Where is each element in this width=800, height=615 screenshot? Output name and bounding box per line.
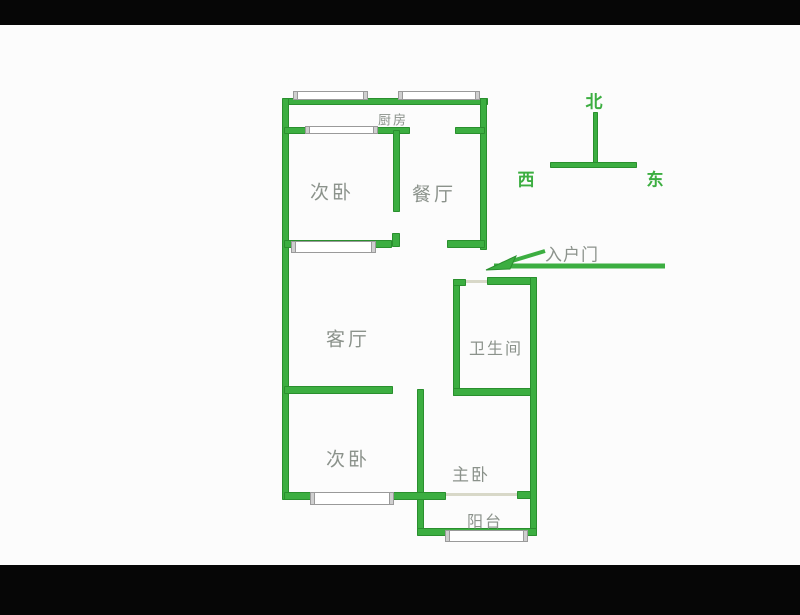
room-label-balcony: 阳台	[467, 508, 503, 532]
wall-outer-left	[282, 98, 289, 500]
room-label-master: 主卧	[452, 461, 490, 486]
wall-outer-right-lower	[530, 277, 537, 536]
room-label-living: 客厅	[326, 325, 370, 352]
window-top-left	[293, 91, 368, 100]
wall-kitchen-right	[455, 127, 485, 134]
room-label-kitchen: 厨房	[378, 110, 408, 129]
room-label-bedroom-bottom: 次卧	[326, 445, 370, 472]
wall-divider-lower	[417, 389, 424, 535]
compass-horizontal-line	[550, 162, 637, 168]
compass-vertical-line	[593, 112, 598, 166]
wall-outer-right-upper	[480, 98, 487, 250]
window-top-right	[398, 91, 480, 100]
room-label-dining: 餐厅	[412, 180, 456, 207]
entrance-arrow-icon	[478, 243, 673, 277]
compass-west-label: 西	[518, 166, 535, 191]
compass-east-label: 东	[647, 166, 664, 191]
wall-living-bottom	[284, 386, 393, 394]
room-label-bedroom-top: 次卧	[310, 178, 354, 205]
window-kitchen	[305, 126, 378, 134]
wall-bath-left	[453, 279, 460, 396]
door-bathroom	[466, 280, 487, 283]
floor-plan-photo: 厨房 次卧 餐厅 客厅 卫生间 次卧 主卧 阳台 入户门 北 西 东	[0, 0, 800, 615]
wall-divider-upper-stub	[392, 233, 400, 247]
compass-north-label: 北	[586, 88, 603, 113]
door-master-balcony	[446, 493, 517, 496]
floor-plan	[0, 0, 800, 615]
wall-divider-upper	[393, 130, 400, 212]
wall-bath-bottom	[453, 388, 537, 396]
wall-bath-top-stub	[453, 279, 466, 286]
room-label-bathroom: 卫生间	[469, 335, 523, 359]
window-living-top	[291, 241, 376, 253]
window-bedroom2	[310, 492, 394, 505]
